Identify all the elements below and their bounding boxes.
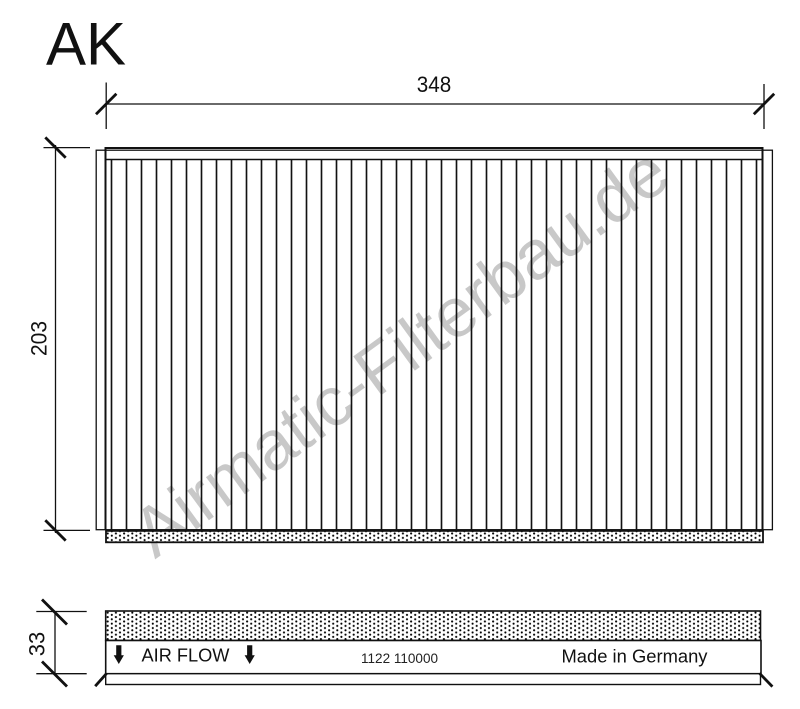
svg-text:1122 110000: 1122 110000 (361, 650, 438, 666)
svg-text:33: 33 (25, 632, 50, 656)
svg-text:AK: AK (46, 11, 126, 78)
svg-text:348: 348 (417, 72, 452, 97)
svg-text:Made in Germany: Made in Germany (562, 646, 708, 666)
svg-text:203: 203 (27, 321, 52, 356)
svg-text:Airmatic-Filterbau.de: Airmatic-Filterbau.de (118, 132, 683, 572)
svg-text:AIR FLOW: AIR FLOW (142, 646, 230, 666)
